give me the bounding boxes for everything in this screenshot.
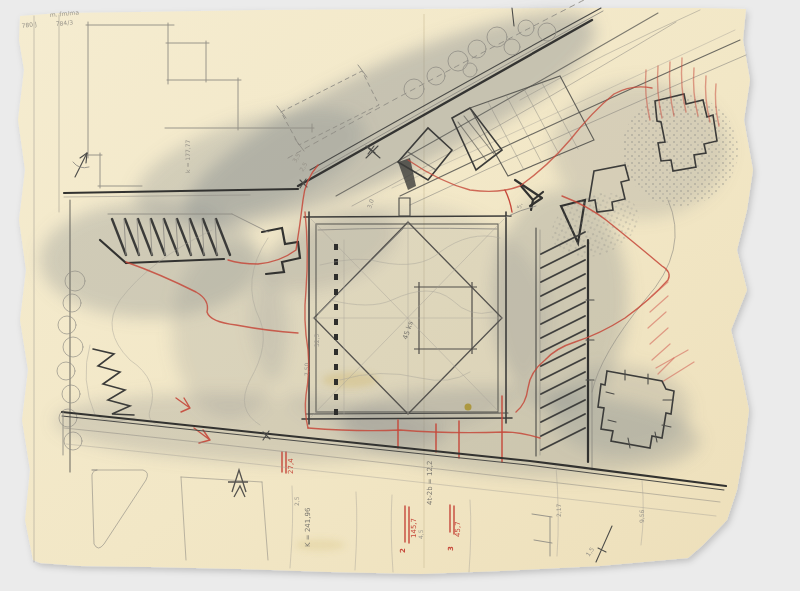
dim-text: 4,5: [417, 529, 424, 539]
level-text: K = 241,96: [304, 507, 312, 547]
red-plot-number: 3: [447, 546, 455, 551]
red-area-text: 45,7: [454, 521, 462, 537]
red-plot-number: 2: [399, 548, 407, 553]
equation-text: 4t-2b = 12,2: [426, 460, 434, 505]
dim-text: 32,5: [313, 333, 320, 347]
dim-text: 2,5: [293, 496, 300, 506]
margin-note-text: k = 177,77: [184, 140, 191, 173]
dim-text: 2,17: [555, 503, 562, 517]
ink-dot-stain: [465, 404, 472, 411]
red-area-text: 145,7: [410, 518, 418, 538]
site-plan-sketch-scan: m. fm/ma 784/3 780 J k = 177,77 2,5 3,5: [0, 0, 800, 591]
scanned-drawing-page: m. fm/ma 784/3 780 J k = 177,77 2,5 3,5: [0, 0, 800, 591]
dim-text: 9,56: [638, 509, 645, 523]
red-area-text: 27,4: [287, 458, 295, 474]
